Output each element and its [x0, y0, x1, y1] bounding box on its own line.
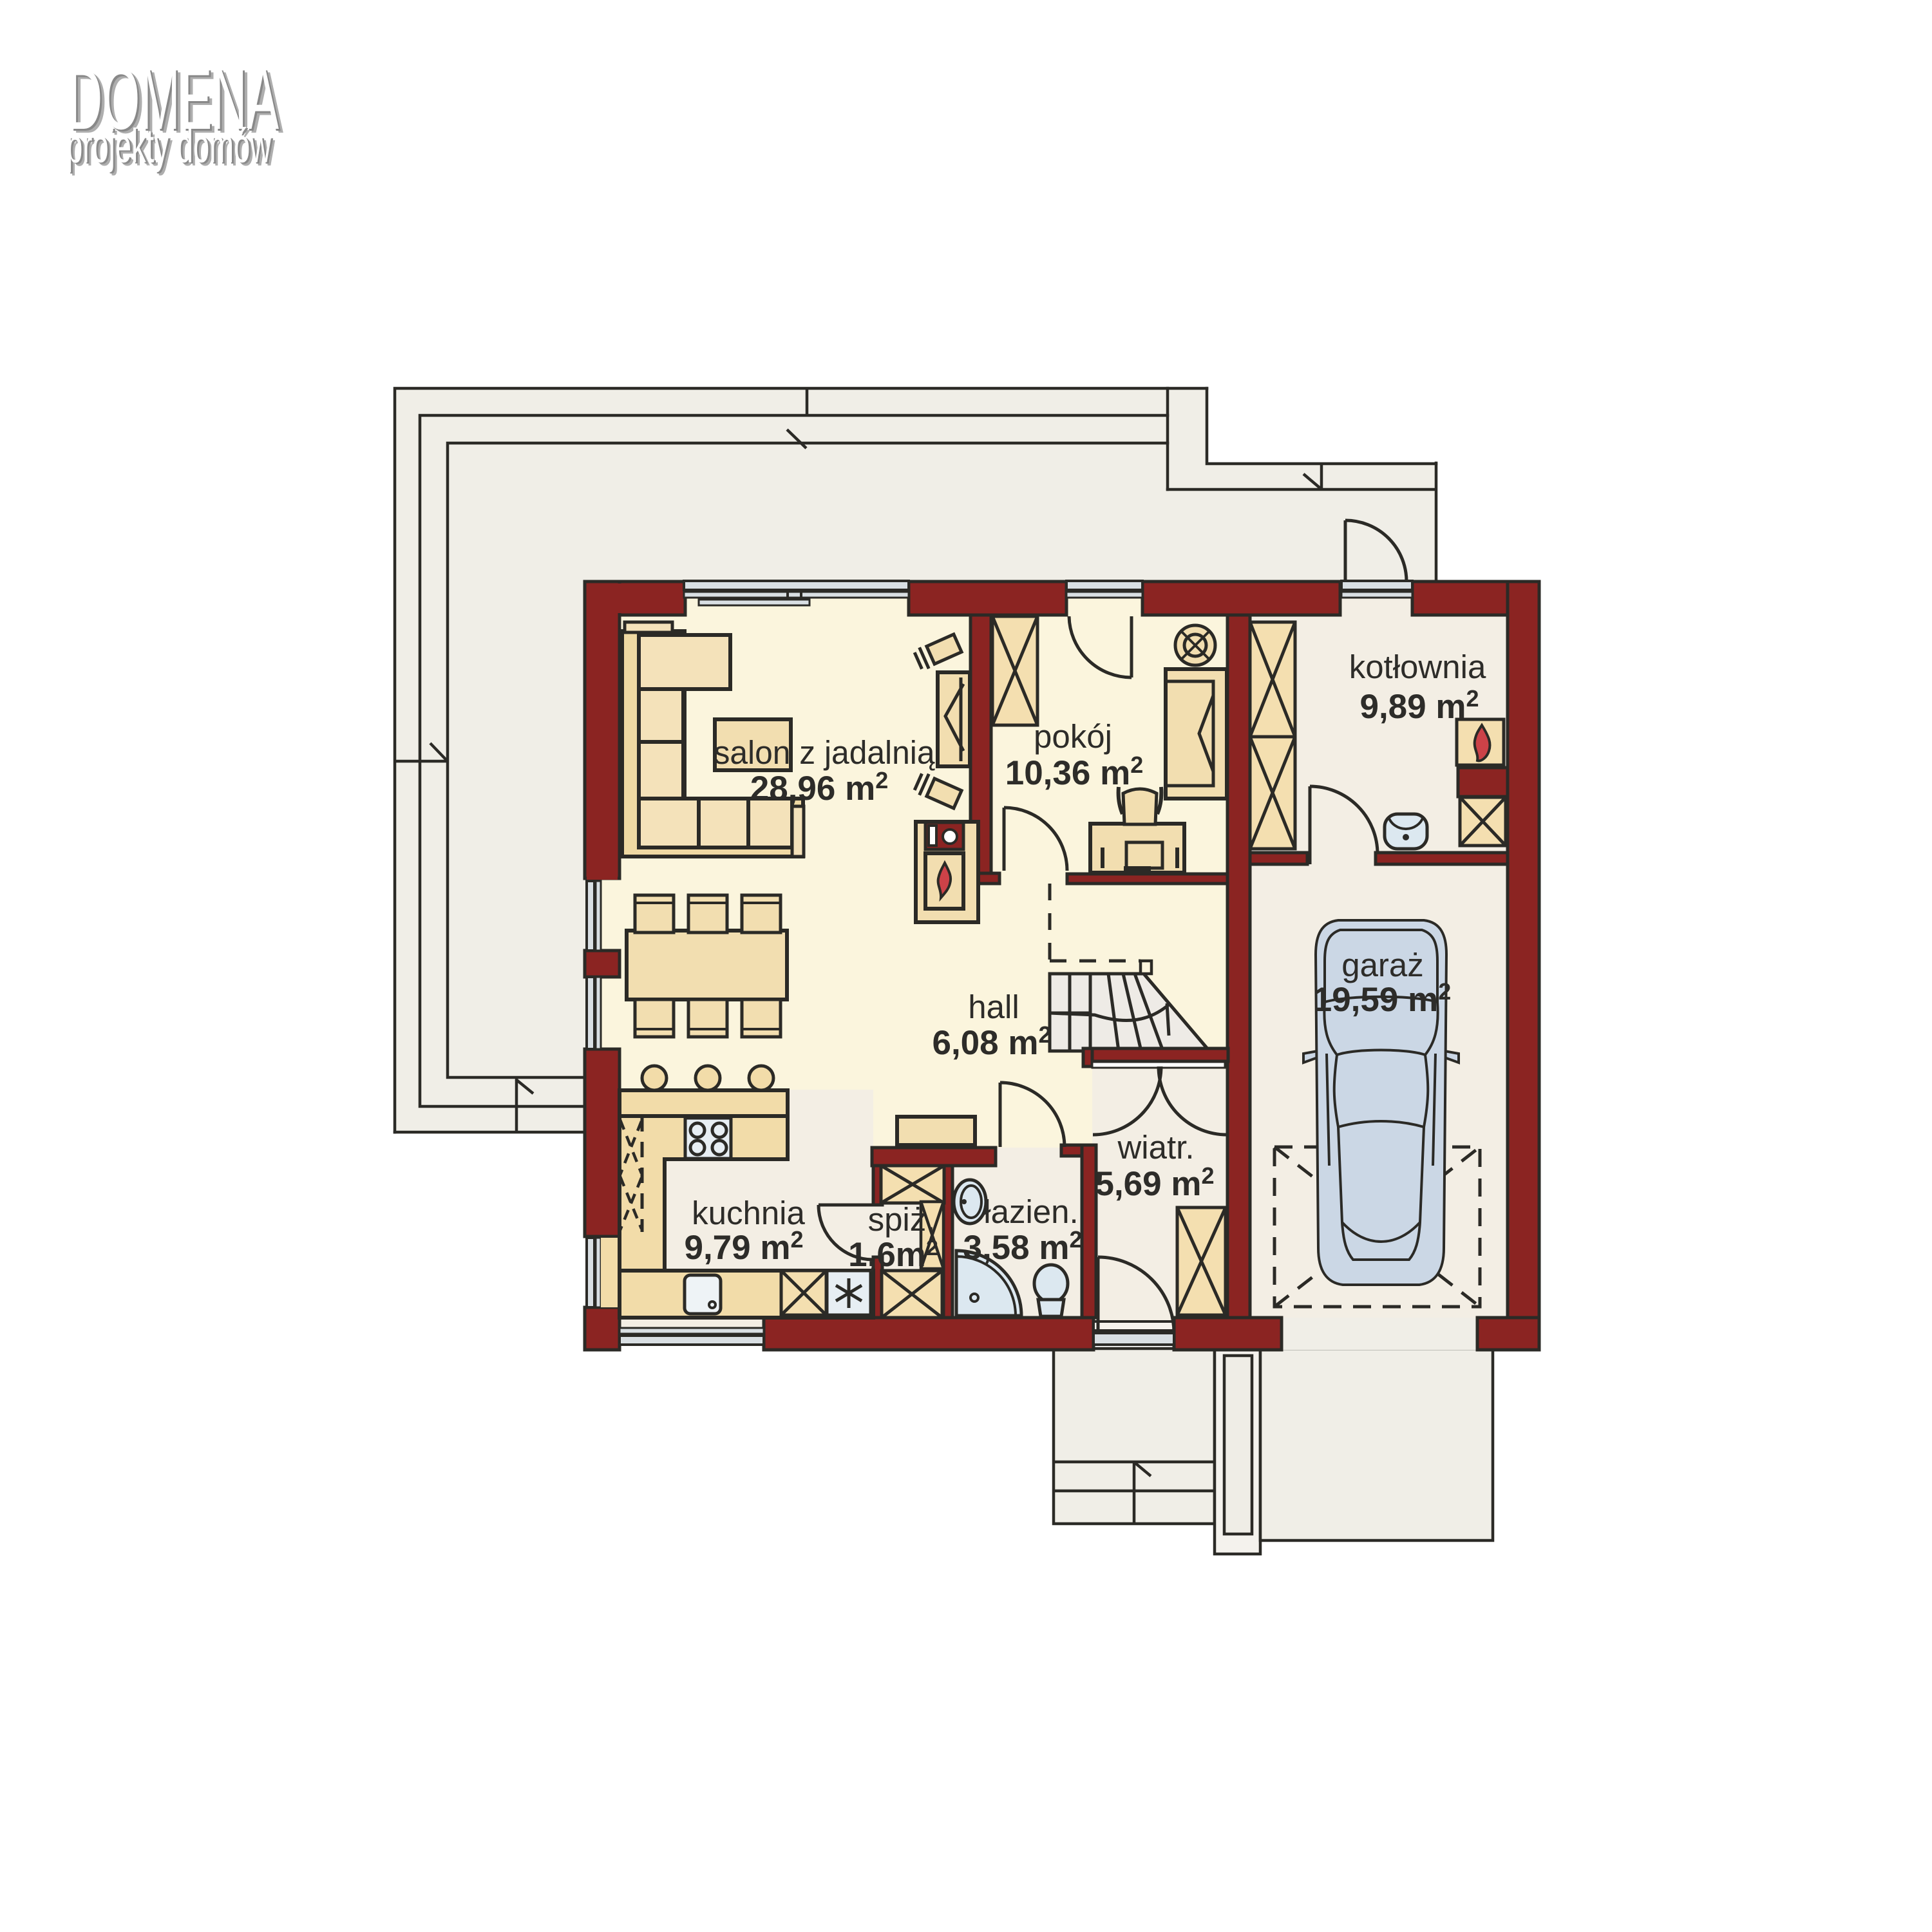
svg-text:spiż.: spiż. — [868, 1201, 936, 1238]
svg-text:łazien.: łazien. — [983, 1193, 1078, 1230]
svg-text:10,36 m2: 10,36 m2 — [1005, 752, 1144, 792]
svg-text:salon z jadalnią: salon z jadalnią — [714, 734, 936, 771]
svg-text:pokój: pokój — [1034, 718, 1112, 755]
svg-text:kotłownia: kotłownia — [1349, 649, 1486, 685]
svg-text:1,6m2: 1,6m2 — [848, 1236, 938, 1274]
svg-text:wiatr.: wiatr. — [1117, 1129, 1194, 1166]
svg-text:projekty domów: projekty domów — [66, 119, 271, 173]
svg-text:kuchnia: kuchnia — [692, 1195, 805, 1231]
svg-text:28,96 m2: 28,96 m2 — [750, 767, 889, 808]
svg-text:3,58 m2: 3,58 m2 — [963, 1226, 1082, 1267]
svg-text:6,08 m2: 6,08 m2 — [932, 1021, 1051, 1062]
svg-text:19,59 m2: 19,59 m2 — [1313, 978, 1452, 1019]
svg-text:garaż: garaż — [1341, 947, 1424, 983]
svg-text:hall: hall — [968, 989, 1019, 1025]
svg-text:5,69 m2: 5,69 m2 — [1095, 1162, 1214, 1203]
svg-text:9,79 m2: 9,79 m2 — [684, 1226, 803, 1267]
svg-text:9,89 m2: 9,89 m2 — [1359, 685, 1479, 726]
